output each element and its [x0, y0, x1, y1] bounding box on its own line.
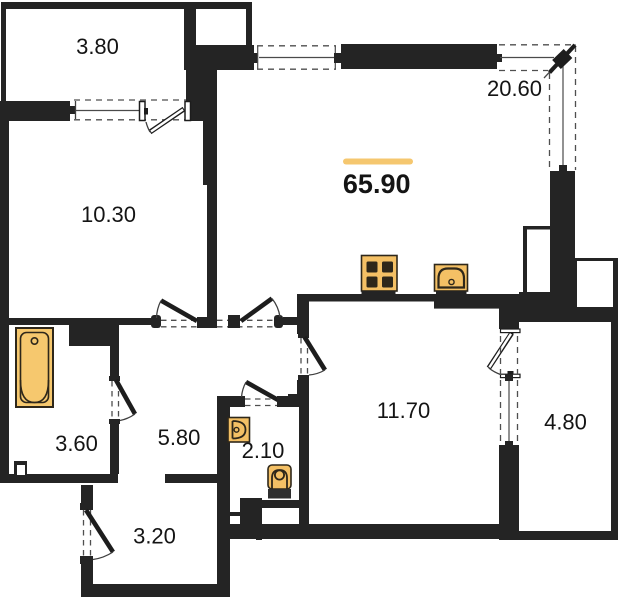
svg-text:3.20: 3.20 — [133, 524, 176, 549]
svg-text:3.80: 3.80 — [76, 34, 119, 59]
svg-text:5.80: 5.80 — [158, 425, 201, 450]
svg-text:65.90: 65.90 — [343, 169, 411, 199]
svg-text:3.60: 3.60 — [55, 431, 98, 456]
svg-text:11.70: 11.70 — [377, 398, 430, 423]
svg-text:2.10: 2.10 — [242, 438, 285, 463]
svg-text:10.30: 10.30 — [81, 202, 136, 227]
svg-text:20.60: 20.60 — [487, 76, 542, 101]
svg-text:4.80: 4.80 — [544, 410, 587, 435]
